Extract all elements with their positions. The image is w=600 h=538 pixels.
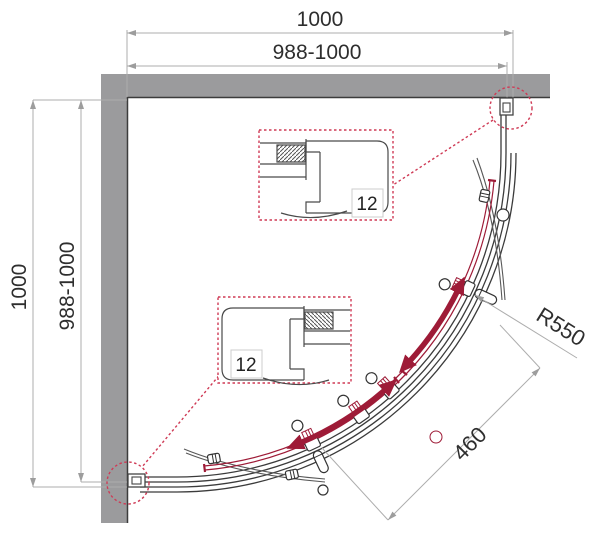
profile-thickness-label-bottom: 12	[235, 355, 256, 376]
wall-profile-bottom-left	[128, 474, 145, 487]
panel-edge-top	[473, 160, 502, 300]
detail-leader-bottom	[142, 372, 222, 467]
detail-leader-top	[393, 120, 493, 185]
wall-left	[101, 74, 127, 523]
door-opening-label: 460	[448, 422, 492, 466]
roller-wheel	[318, 485, 328, 495]
glass-clamp	[479, 189, 490, 203]
side-height-range-label: 988-1000	[56, 242, 79, 331]
side-height-label: 1000	[8, 264, 31, 311]
top-width-range-label: 988-1000	[273, 41, 362, 64]
glass-clamp	[285, 469, 299, 480]
glass-clamp	[207, 453, 220, 464]
detail-callout-top: 12	[259, 87, 532, 220]
shower-enclosure-plan-diagram: 1000 988-1000 1000 988-1000	[0, 0, 600, 538]
roller-wheel	[497, 209, 509, 221]
panel-edge-bottom	[184, 449, 325, 479]
top-width-label: 1000	[297, 8, 344, 31]
radius-label: R550	[532, 302, 590, 351]
profile-thickness-label-top: 12	[356, 194, 377, 215]
roller-wheel-red	[430, 431, 442, 443]
diagram-canvas: 1000 988-1000 1000 988-1000	[0, 0, 600, 538]
wall-top	[101, 74, 550, 97]
